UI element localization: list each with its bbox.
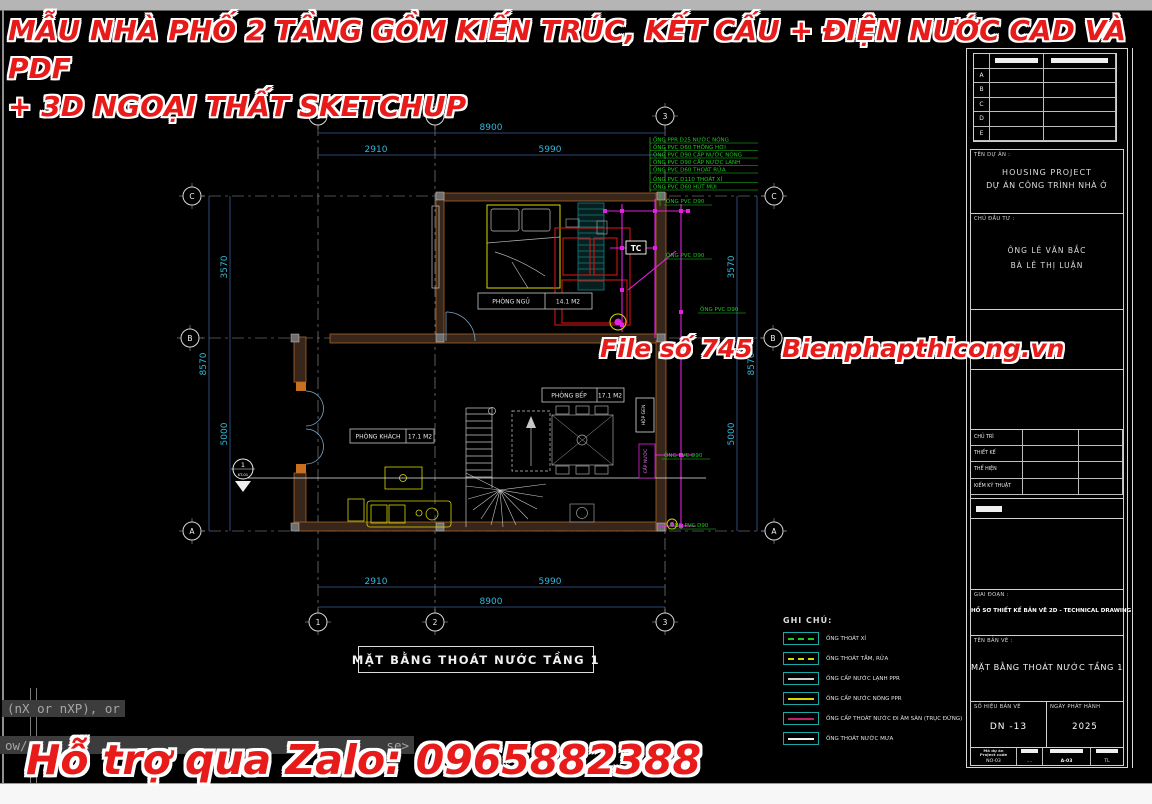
legend-item: ỐNG THOÁT XÍ — [783, 632, 983, 645]
svg-text:ỐNG PVC D90 CẤP NƯỚC NÓNG: ỐNG PVC D90 CẤP NƯỚC NÓNG — [653, 151, 742, 159]
watermark-zalo: Hỗ trợ qua Zalo: 0965882388 — [26, 736, 701, 784]
tc-box: TC — [626, 241, 646, 254]
titleblock-main: TÊN DỰ ÁN : HOUSING PROJECT DỰ ÁN CÔNG T… — [970, 149, 1124, 766]
empty-section-3 — [971, 519, 1123, 590]
window-bottom-strip — [0, 783, 1152, 804]
svg-text:C: C — [189, 192, 194, 201]
svg-text:17.1 M2: 17.1 M2 — [408, 434, 432, 441]
legend-item: ỐNG CẤP NƯỚC LẠNH PPR — [783, 672, 983, 685]
svg-text:8900: 8900 — [480, 597, 503, 607]
svg-text:ỐNG PVC D60 HÚT MÙI: ỐNG PVC D60 HÚT MÙI — [653, 183, 717, 191]
svg-text:HỘP GEN: HỘP GEN — [640, 405, 647, 426]
svg-text:1: 1 — [241, 461, 245, 469]
svg-text:ỐNG PVC D90 CẤP NƯỚC LẠNH: ỐNG PVC D90 CẤP NƯỚC LẠNH — [653, 158, 740, 166]
blanket — [487, 237, 560, 288]
legend-item: ỐNG THOÁT NƯỚC MƯA — [783, 732, 983, 745]
room-label-kitchen: PHÒNG BẾP 17.1 M2 — [542, 388, 624, 402]
stair-fan — [466, 473, 546, 527]
legend-item: ỐNG CẤP THOÁT NƯỚC ĐI ÂM SÀN (TRỤC ĐỨNG) — [783, 712, 983, 725]
legend-sample-box — [783, 632, 819, 645]
svg-text:3570: 3570 — [727, 255, 737, 278]
supply-box: CẤP NƯỚC — [639, 444, 655, 478]
svg-text:ỐNG PVC D90: ỐNG PVC D90 — [666, 251, 705, 259]
svg-text:5000: 5000 — [727, 422, 737, 445]
svg-text:ỐNG PVC D60 THÔNG HƠI: ỐNG PVC D60 THÔNG HƠI — [653, 143, 726, 151]
signature-table: CHỦ TRÌ THIẾT KẾ THỂ HIỆN KIỂM KỸ THUẬT — [971, 430, 1123, 499]
svg-text:PHÒNG BẾP: PHÒNG BẾP — [551, 392, 587, 400]
watermark-file-no: File số 745 — [600, 334, 753, 363]
legend-sample-box — [783, 732, 819, 745]
stair-shaft-hatch — [578, 203, 604, 290]
svg-text:14.1 M2: 14.1 M2 — [556, 299, 580, 306]
section-marker: 1 KT-01 — [231, 459, 255, 492]
project-section: TÊN DỰ ÁN : HOUSING PROJECT DỰ ÁN CÔNG T… — [971, 150, 1123, 214]
command-line-text-1: (nX or nXP), or — [2, 700, 125, 717]
legend-item: ỐNG CẤP NƯỚC NÓNG PPR — [783, 692, 983, 705]
bed — [487, 205, 560, 288]
svg-text:ỐNG PVC D90: ỐNG PVC D90 — [664, 451, 703, 459]
shaft-box: HỘP GEN — [636, 398, 654, 432]
svg-text:PHÒNG NGỦ: PHÒNG NGỦ — [492, 298, 529, 306]
stairs — [466, 408, 550, 528]
svg-text:ỐNG PVC D90: ỐNG PVC D90 — [670, 521, 709, 529]
svg-text:A: A — [189, 527, 195, 536]
legend-sample-box — [783, 672, 819, 685]
svg-text:ỐNG PVC D90: ỐNG PVC D90 — [666, 197, 705, 205]
legend-sample-box — [783, 692, 819, 705]
watermark-website: Bienphapthicong.vn — [782, 334, 1064, 363]
svg-text:C: C — [771, 192, 776, 201]
owner-section: CHỦ ĐẦU TƯ : ÔNG LÊ VĂN BẮC BÀ LÊ THỊ LU… — [971, 214, 1123, 310]
svg-text:KT-01: KT-01 — [238, 472, 249, 477]
bedroom-furniture — [432, 205, 560, 341]
pipe-labels: ỐNG PVC D90 ỐNG PVC D90 ỐNG PVC D90 ỐNG … — [662, 197, 746, 529]
legend: GHI CHÚ: ỐNG THOÁT XÍ ỐNG THOÁT TẮM, RỬA… — [783, 616, 983, 752]
drawing-title-box: MẶT BẰNG THOÁT NƯỚC TẦNG 1 — [358, 646, 594, 673]
pillow-2 — [522, 209, 550, 231]
svg-text:ỐNG PVC D90: ỐNG PVC D90 — [700, 305, 739, 313]
autocad-window: { "watermark": { "accent_color": "#e81b1… — [0, 0, 1152, 803]
svg-text:ỐNG PVC D60 THOÁT RỬA: ỐNG PVC D60 THOÁT RỬA — [653, 166, 726, 174]
sheet-outer-border — [1132, 48, 1133, 768]
svg-text:17.1 M2: 17.1 M2 — [598, 393, 622, 400]
drawing-title: MẶT BẰNG THOÁT NƯỚC TẦNG 1 — [352, 653, 600, 667]
watermark-title: MẪU NHÀ PHỐ 2 TẦNG GỒM KIẾN TRÚC, KẾT CẤ… — [8, 12, 1152, 125]
svg-text:ỐNG PVC D110 THOÁT XÍ: ỐNG PVC D110 THOÁT XÍ — [653, 175, 723, 183]
pillow-1 — [491, 209, 519, 231]
svg-text:5000: 5000 — [220, 422, 230, 445]
svg-text:ỐNG PPR D25 NƯỚC NÓNG: ỐNG PPR D25 NƯỚC NÓNG — [653, 136, 729, 144]
stamp-strip — [971, 499, 1123, 519]
svg-text:2: 2 — [433, 618, 438, 627]
svg-text:3: 3 — [663, 618, 668, 627]
svg-text:2910: 2910 — [365, 145, 388, 155]
dining-set — [552, 406, 613, 474]
svg-text:TC: TC — [631, 244, 642, 253]
legend-sample-box — [783, 652, 819, 665]
svg-text:5990: 5990 — [539, 145, 562, 155]
room-label-living: PHÒNG KHÁCH 17.1 M2 — [350, 429, 434, 443]
svg-text:1: 1 — [316, 618, 321, 627]
number-row: SỐ HIỆU BẢN VẼ DN -13 NGÀY PHÁT HÀNH 202… — [971, 702, 1123, 748]
svg-text:B: B — [770, 334, 775, 343]
svg-text:8570: 8570 — [199, 352, 209, 375]
sheet-name-section: TÊN BẢN VẼ : MẶT BẰNG THOÁT NƯỚC TẦNG 1 — [971, 636, 1123, 702]
phase-section: GIAI ĐOẠN : HỒ SƠ THIẾT KẾ BẢN VẼ 2D - T… — [971, 590, 1123, 636]
legend-title: GHI CHÚ: — [783, 616, 983, 625]
svg-text:PHÒNG KHÁCH: PHÒNG KHÁCH — [355, 434, 400, 441]
washing-machine — [570, 504, 594, 522]
svg-text:5990: 5990 — [539, 577, 562, 587]
legend-item: ỐNG THOÁT TẮM, RỬA — [783, 652, 983, 665]
bottom-row: Mã dự án Project code NO-03 .... A-03 TL — [971, 748, 1123, 765]
svg-text:3570: 3570 — [220, 255, 230, 278]
legend-sample-box — [783, 712, 819, 725]
entry-doors — [296, 382, 324, 473]
empty-section-2 — [971, 370, 1123, 430]
svg-text:B: B — [187, 334, 192, 343]
svg-text:A: A — [771, 527, 777, 536]
plumbing-magenta — [605, 199, 696, 529]
svg-text:2910: 2910 — [365, 577, 388, 587]
room-label-bedroom: PHÒNG NGỦ 14.1 M2 — [478, 293, 592, 309]
titleblock-frame: A B C D E TÊN DỰ ÁN : HOUSING PROJECT DỰ… — [966, 48, 1128, 768]
